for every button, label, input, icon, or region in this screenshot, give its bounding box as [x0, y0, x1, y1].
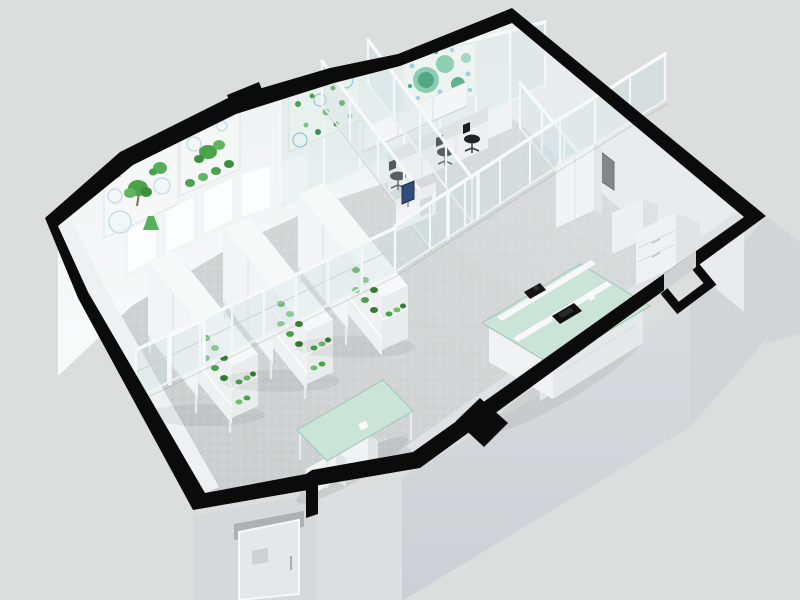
south-wall-jog [306, 482, 318, 518]
lab-floorplan-render [0, 0, 800, 600]
entry-door [234, 511, 304, 600]
door-leaf [239, 520, 299, 600]
scene-canvas [0, 0, 800, 600]
window-pane [240, 163, 272, 219]
